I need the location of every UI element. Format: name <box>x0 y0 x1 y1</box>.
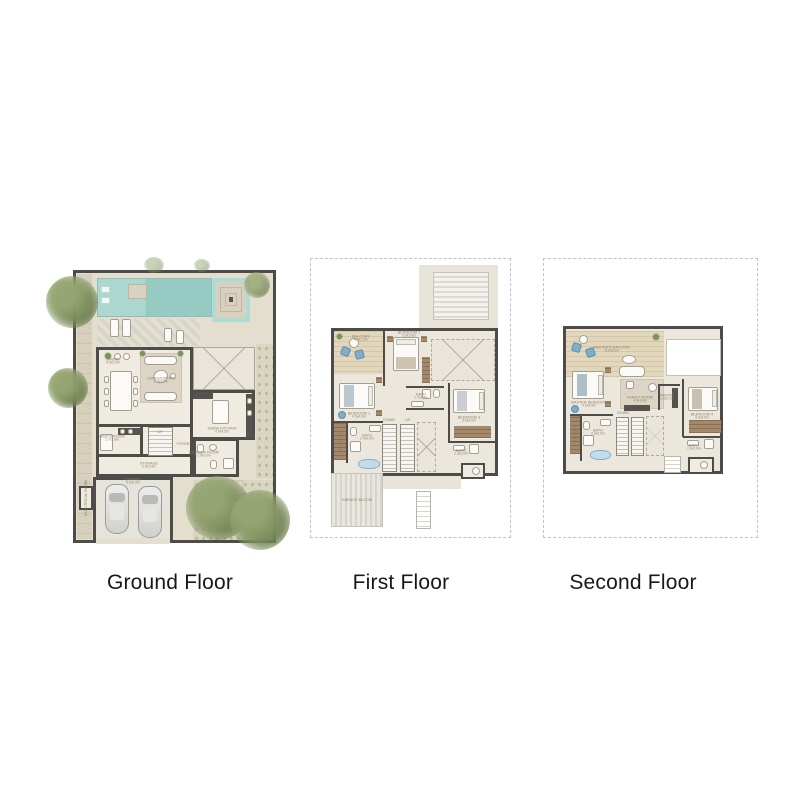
interior-wall <box>406 386 444 388</box>
bed-throw <box>396 357 416 369</box>
open-void <box>666 339 721 376</box>
double-height-void <box>431 339 495 381</box>
room-label: POWDER ROOM1.5x2.0m <box>189 450 218 458</box>
room-label: DINING4.0x2.5m <box>106 357 120 365</box>
vanity <box>411 401 424 407</box>
interior-wall <box>449 441 498 443</box>
room-dims: 2.4x2.0m <box>360 437 374 441</box>
dining-chair <box>133 388 138 395</box>
basin <box>472 467 480 475</box>
interior-wall <box>683 436 723 438</box>
tree <box>230 490 290 550</box>
interior-wall <box>570 414 613 416</box>
room-label: BEDROOM 14.5x4.0m <box>348 411 370 419</box>
coffee-table <box>622 355 636 364</box>
shrub <box>194 259 210 272</box>
room-label: BATH1.7x2.4m <box>414 392 428 400</box>
sun-lounger <box>110 319 119 337</box>
plant <box>177 350 184 357</box>
bathtub <box>590 450 611 460</box>
tree <box>48 368 88 408</box>
wardrobe <box>422 357 430 383</box>
room-label: BEDROOM 43.3x4.0m <box>691 412 713 420</box>
shrub <box>244 272 270 298</box>
staircase <box>631 417 644 456</box>
room-dims: 2.0x1.6m <box>140 465 158 469</box>
room-label: UP <box>157 430 162 434</box>
room-dims: 6.0x6.0m <box>125 481 141 485</box>
garden-strip-right <box>256 344 273 478</box>
car-windshield <box>142 495 158 504</box>
sun-lounger <box>176 330 184 344</box>
appliance <box>247 398 252 404</box>
room-label: FAMILY ROOM4.0x3.6m <box>627 395 653 403</box>
room-label: BATH2.4x2.0m <box>360 433 374 441</box>
room-dims: 3.9x3.8m <box>398 334 420 338</box>
room-label: BATH2.3x2.0m <box>454 448 468 456</box>
room-dims: 1.7x2.4m <box>414 396 428 400</box>
driveway-opening <box>96 538 170 544</box>
bathtub <box>358 459 380 469</box>
wardrobe <box>689 420 721 433</box>
tree <box>46 276 98 328</box>
bed-throw <box>344 385 354 407</box>
staircase <box>400 424 415 472</box>
balcony-table <box>579 335 588 344</box>
decor-bowl <box>123 353 130 360</box>
shower <box>583 435 594 446</box>
room-label: BALCONY4.5x2.0m <box>352 334 370 342</box>
dining-chair <box>104 376 109 383</box>
swimming-pool <box>97 278 212 317</box>
bed-pillow <box>598 375 603 395</box>
room-label: BATH2.4x2.0m <box>687 443 701 451</box>
room-dims: 2.4x2.0m <box>687 447 701 451</box>
room-label: MASTER BEDROOM4.5x4.0m <box>571 400 607 408</box>
floor-title-ground: Ground Floor <box>107 571 233 595</box>
interior-wall <box>334 421 383 423</box>
landing-steps <box>664 456 681 473</box>
dining-chair <box>104 388 109 395</box>
room-name: UP <box>157 430 162 434</box>
room-dims: 2.3x2.0m <box>454 452 468 456</box>
shower <box>223 458 234 469</box>
interior-wall <box>682 379 684 437</box>
room-label: W.I.CLOSET <box>573 424 577 446</box>
room-dims: 4.0x2.5m <box>106 361 120 365</box>
basin <box>700 461 708 469</box>
louvered-pergola <box>433 272 489 320</box>
wc <box>210 460 217 469</box>
room-label: BEDROOM 33.5x4.0m <box>458 415 480 423</box>
nightstand <box>605 367 611 373</box>
nightstand <box>376 410 382 416</box>
interior-wall <box>658 384 680 386</box>
room-label: MASTER'S BALCONY5.0x3.0m <box>593 345 631 353</box>
appliance <box>247 410 252 416</box>
covered-terrace <box>193 347 255 390</box>
wc <box>583 421 590 430</box>
room-label: DOWN <box>383 418 395 422</box>
room-name: W.I.CLOSET <box>338 430 342 452</box>
entry-steps <box>416 491 431 529</box>
lounge-chair <box>648 383 657 392</box>
vanity <box>369 425 381 432</box>
room-label: UP <box>405 418 410 422</box>
bed-pillow <box>368 386 373 406</box>
room-dims: 1.6x2.1m <box>660 397 675 401</box>
car <box>138 486 162 538</box>
sofa <box>619 366 645 377</box>
sun-lounger <box>164 328 172 342</box>
dining-table <box>110 371 132 411</box>
bed-throw <box>577 374 587 396</box>
room-label: ELECTRICAL ROOM <box>84 480 88 516</box>
interior-wall <box>383 331 385 386</box>
sun-lounger <box>122 319 131 337</box>
kitchen-counter <box>193 392 213 399</box>
shower <box>704 439 714 449</box>
room-dims: 4.5x4.0m <box>571 404 607 408</box>
kitchen-island <box>212 400 229 424</box>
room-label: BATH2.3x2.0m <box>591 428 605 436</box>
sofa <box>144 392 177 401</box>
room-label: W.I.CLOSET <box>338 430 342 452</box>
wc <box>350 427 357 436</box>
staircase <box>382 424 397 472</box>
room-name: DOWN <box>383 418 395 422</box>
bed-throw <box>692 389 702 409</box>
dining-chair <box>133 400 138 407</box>
water-feature-center <box>229 297 233 302</box>
dining-chair <box>104 400 109 407</box>
ground-floor-plan: DINING4.0x2.5m LIVING/SITTING5.5x5.0m SH… <box>60 252 300 550</box>
second-floor-plan: MASTER'S BALCONY5.0x3.0m MASTER BEDROOM4… <box>543 258 758 538</box>
plant <box>139 350 146 357</box>
pool-platform <box>128 284 147 299</box>
room-label: FOYER <box>177 442 190 446</box>
room-label: LIVING/SITTING5.5x5.0m <box>147 376 175 384</box>
nightstand <box>376 377 382 383</box>
dining-chair <box>133 376 138 383</box>
room-label: DOWN <box>617 411 629 415</box>
room-dims: 3.3x4.0m <box>691 416 713 420</box>
room-name: UP <box>405 418 410 422</box>
room-dims: 4.5x4.5m <box>207 430 236 434</box>
bed-pillow <box>479 392 484 410</box>
first-floor-plan: BALCONY4.5x2.0m BEDROOM 23.9x3.8m BEDROO… <box>310 258 511 538</box>
dryer <box>128 429 133 434</box>
bed-pillow <box>712 390 717 407</box>
roof-apron <box>383 476 461 489</box>
room-dims: 4.5x2.0m <box>352 338 370 342</box>
room-name: ELECTRICAL ROOM <box>84 480 88 516</box>
room-dims: 4.0x3.6m <box>627 399 653 403</box>
sofa <box>144 356 177 365</box>
pool-steps <box>101 297 110 304</box>
accent-chair <box>626 381 634 389</box>
vanity <box>600 419 611 426</box>
car <box>105 484 129 534</box>
room-label: SHOW KITCHEN4.5x4.5m <box>207 426 236 434</box>
interior-wall <box>96 424 193 427</box>
room-dims: 2.7x2.6m <box>99 438 124 442</box>
wardrobe <box>454 426 491 438</box>
plant <box>336 333 343 340</box>
room-dims: 3.5x4.0m <box>458 419 480 423</box>
room-label: STORAGE2.0x1.6m <box>140 461 158 469</box>
room-name: FOYER <box>177 442 190 446</box>
room-dims: 2.3x2.0m <box>591 432 605 436</box>
nightstand <box>421 336 427 342</box>
interior-wall <box>580 416 582 461</box>
interior-wall <box>448 383 450 443</box>
room-label: PANTRY1.6x2.1m <box>660 393 675 401</box>
plant <box>652 333 660 341</box>
shower <box>469 444 479 454</box>
interior-wall <box>346 423 348 463</box>
room-dims: 1.5x2.0m <box>189 454 218 458</box>
nightstand <box>387 336 393 342</box>
car-roof <box>110 504 124 520</box>
room-label: MAID'S ROOM2.7x2.6m <box>99 434 124 442</box>
room-dims: 4.5x4.0m <box>348 415 370 419</box>
room-label: GARAGE6.0x6.0m <box>125 477 141 485</box>
room-label: BEDROOM 23.9x3.8m <box>398 330 420 338</box>
accent-chair <box>338 411 346 419</box>
room-name: W.I.CLOSET <box>573 424 577 446</box>
shower <box>350 441 361 452</box>
room-name: GARAGE BELOW <box>342 498 372 502</box>
room-name: DOWN <box>617 411 629 415</box>
room-dims: 5.0x3.0m <box>593 349 631 353</box>
bed-throw <box>457 391 467 411</box>
staircase <box>616 417 629 456</box>
floor-title-second: Second Floor <box>569 571 696 595</box>
car-windshield <box>109 493 125 502</box>
interior-wall <box>406 408 444 410</box>
car-roof <box>143 506 157 522</box>
wc <box>433 389 440 398</box>
pool-steps <box>101 286 110 293</box>
room-dims: 5.5x5.0m <box>147 380 175 384</box>
interior-wall <box>96 454 193 457</box>
bed-pillow <box>396 339 416 345</box>
room-label: GARAGE BELOW <box>342 498 372 502</box>
stair-void <box>417 422 436 472</box>
stair-void <box>646 416 664 456</box>
floor-title-first: First Floor <box>353 571 450 595</box>
shrub <box>144 257 164 273</box>
